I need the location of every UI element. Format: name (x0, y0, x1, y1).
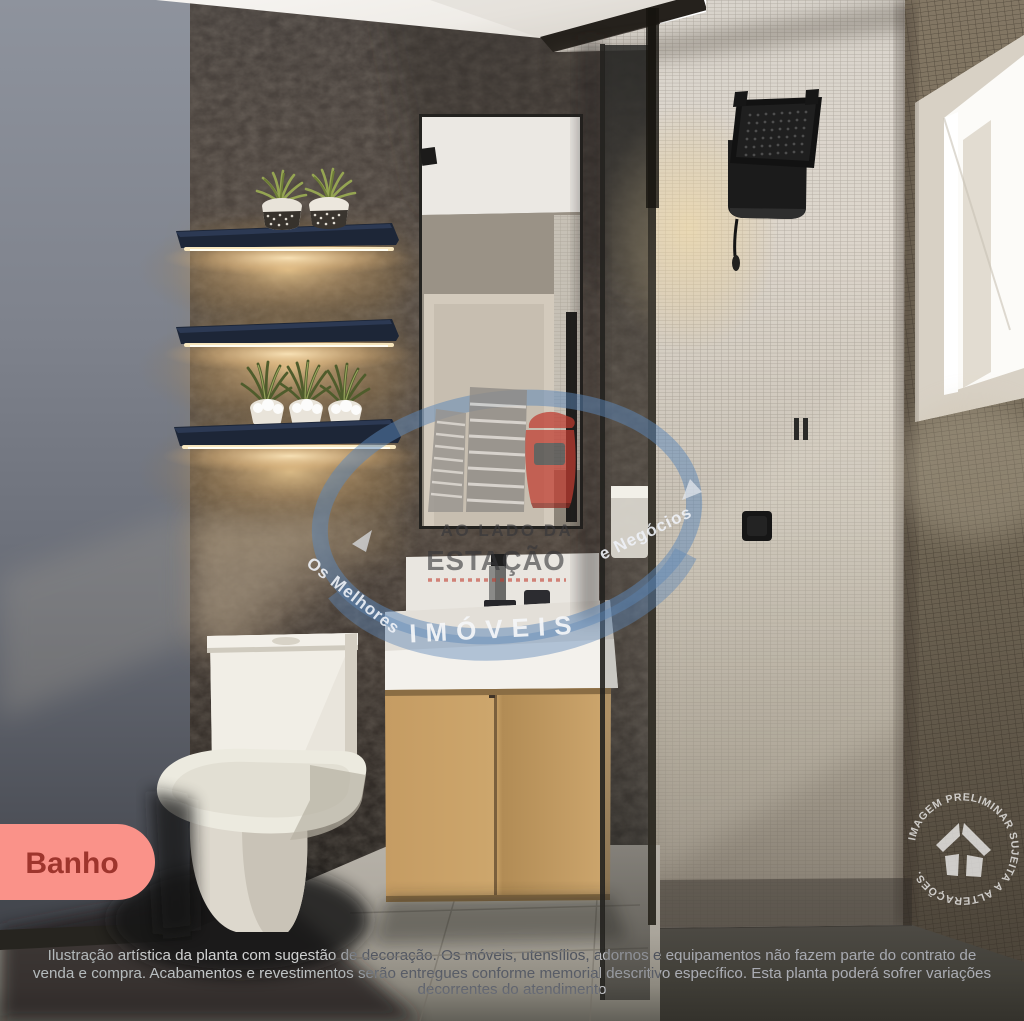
svg-text:decorrentes do atendimento: decorrentes do atendimento (417, 981, 606, 998)
svg-text:venda e compra. Acabamentos e: venda e compra. Acabamentos e revestimen… (33, 965, 992, 982)
svg-text:ESTAÇÃO: ESTAÇÃO (426, 545, 565, 576)
svg-text:Ilustração artística da planta: Ilustração artística da planta com suges… (48, 947, 977, 964)
svg-text:AO LADO DA: AO LADO DA (441, 521, 574, 540)
svg-text:Banho: Banho (25, 847, 118, 880)
